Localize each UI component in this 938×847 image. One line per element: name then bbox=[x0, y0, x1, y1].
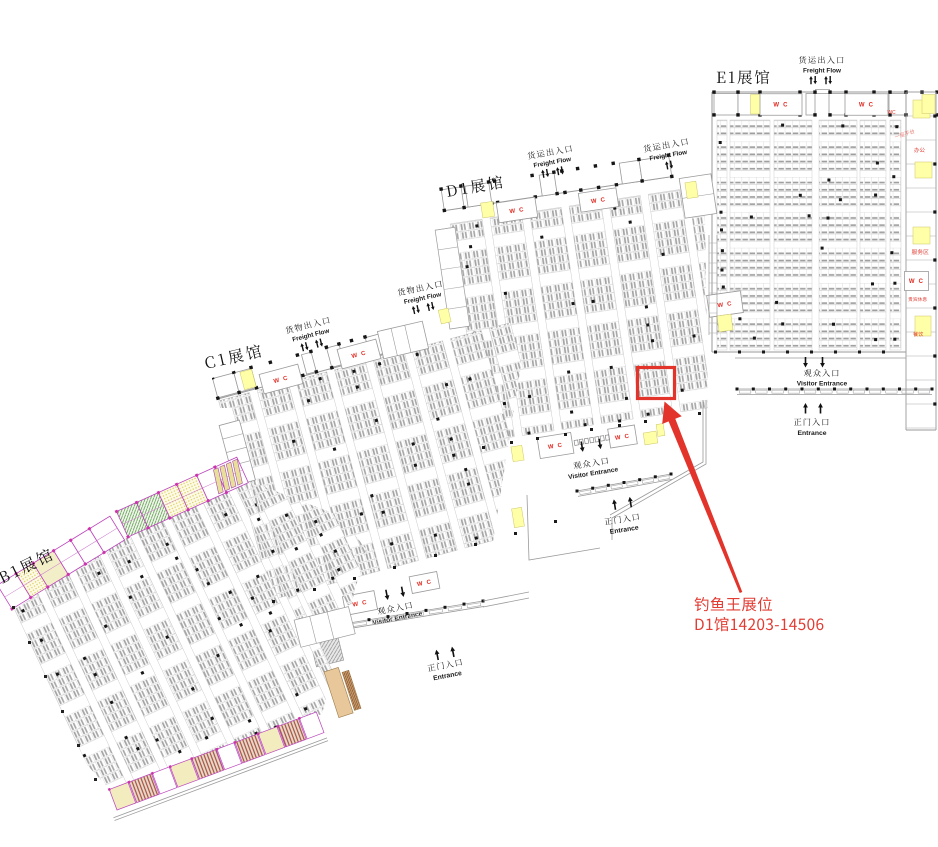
svg-text:W C: W C bbox=[859, 103, 874, 109]
svg-text:Entrance: Entrance bbox=[797, 430, 826, 437]
svg-text:Visitor Entrance: Visitor Entrance bbox=[797, 380, 848, 387]
svg-text:WC: WC bbox=[887, 110, 896, 116]
svg-text:Freight Flow: Freight Flow bbox=[803, 67, 841, 74]
svg-text:W C: W C bbox=[909, 279, 924, 285]
svg-text:W C: W C bbox=[773, 103, 788, 109]
